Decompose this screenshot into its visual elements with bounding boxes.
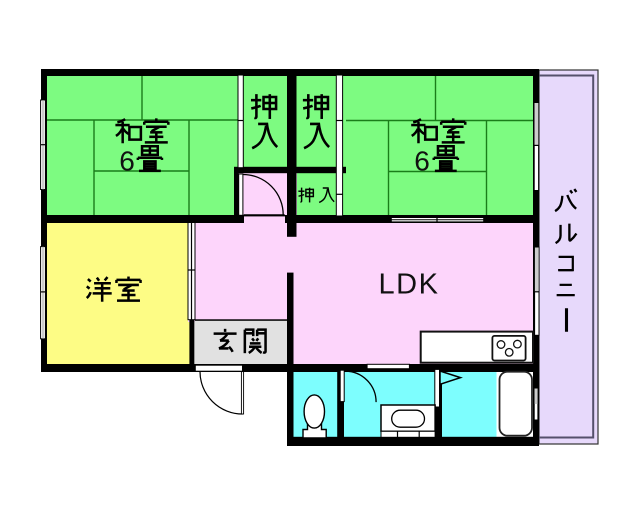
svg-text:6: 6 [414,145,430,176]
svg-text:6: 6 [119,145,135,176]
svg-text:LDK: LDK [379,269,440,301]
